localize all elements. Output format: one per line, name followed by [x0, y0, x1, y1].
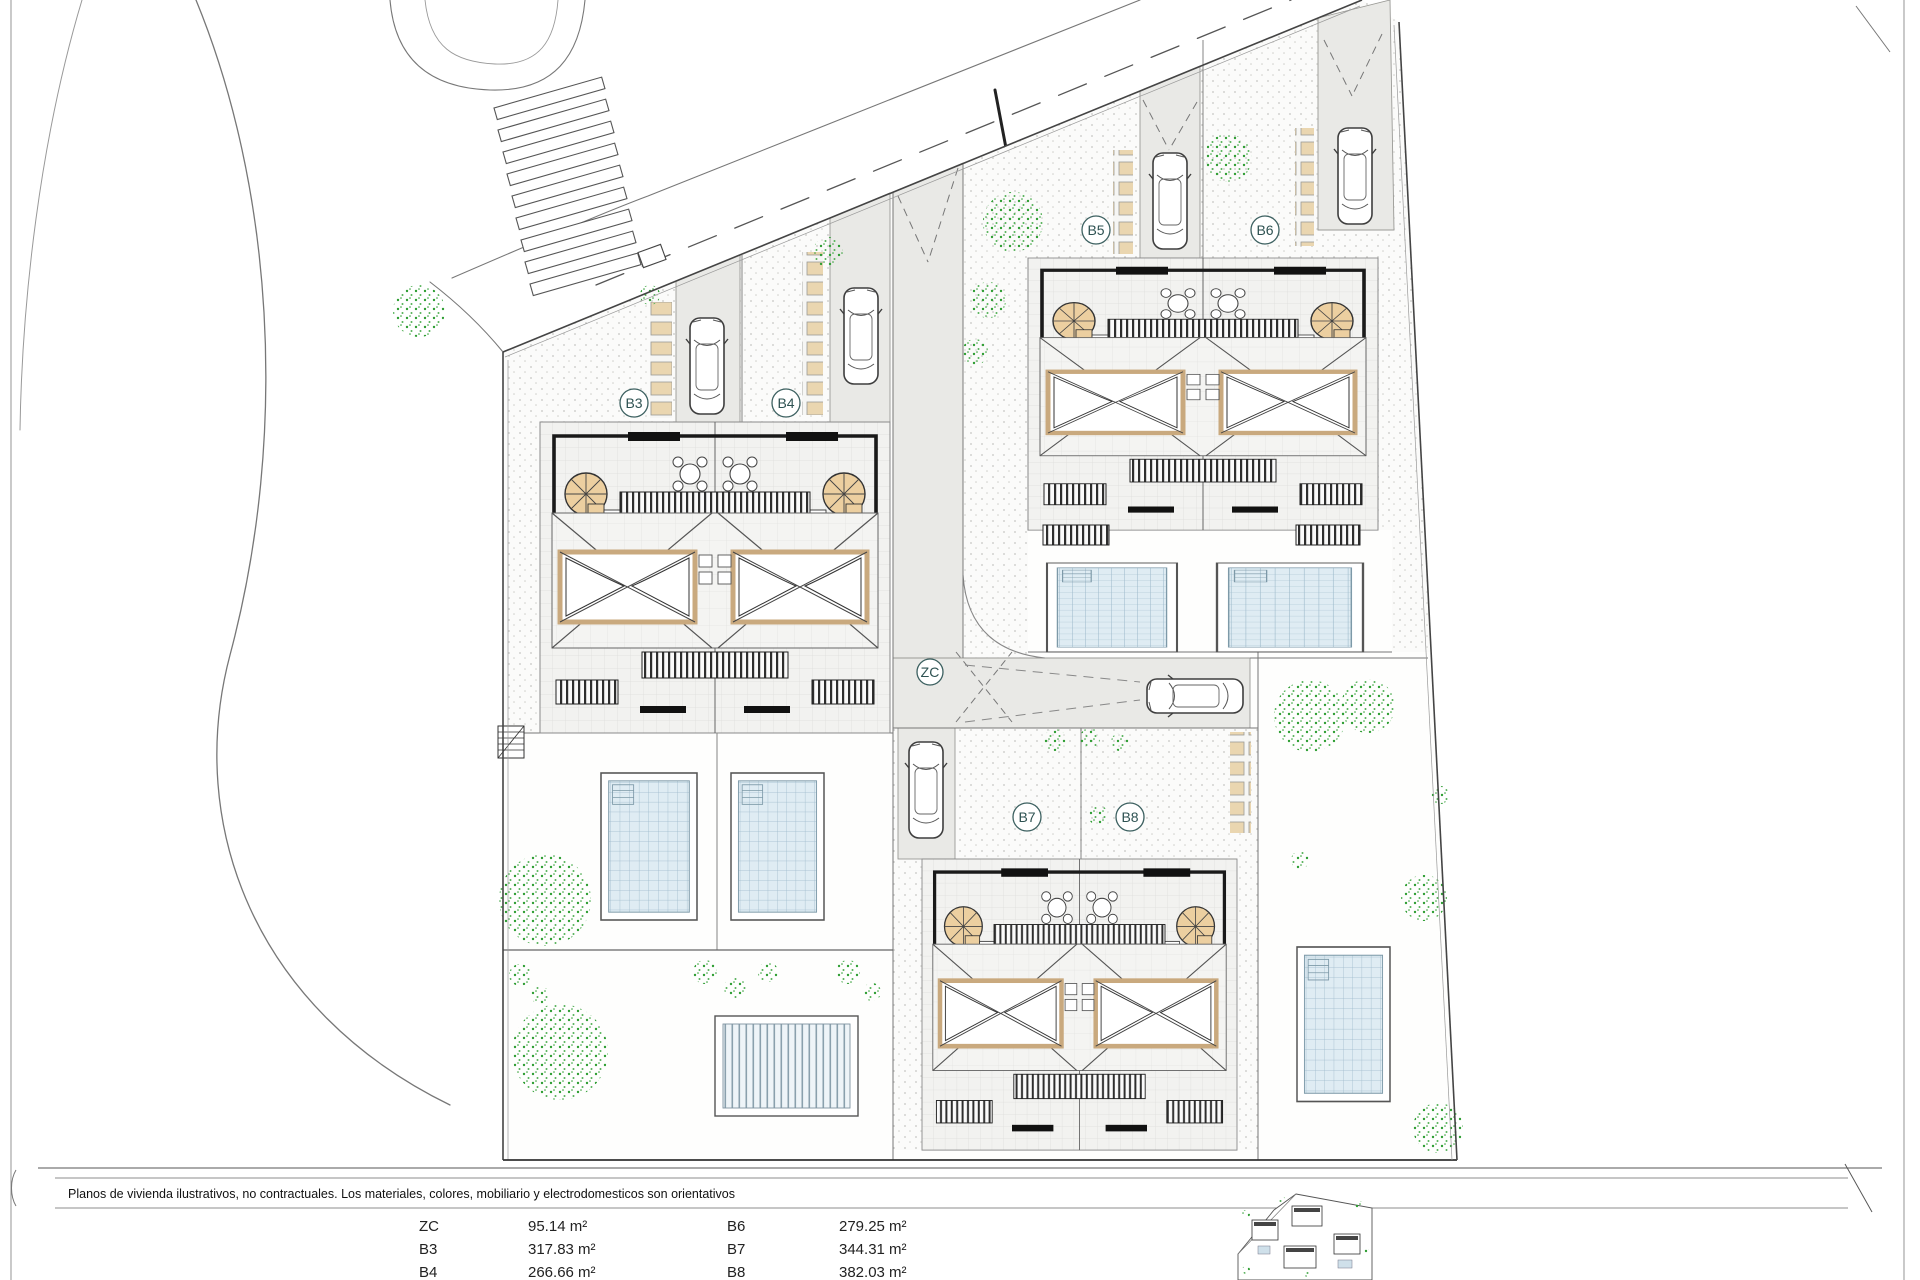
legend-val: 317.83 m² [528, 1241, 596, 1258]
duplex-b3-b4 [540, 422, 890, 733]
tree-icon [962, 339, 988, 365]
shrub-icon [863, 983, 881, 1001]
legend-val: 266.66 m² [528, 1264, 596, 1280]
paver-strip-b3 [650, 302, 672, 418]
plan-sheet: B3 B4 B5 B6 B7 B8 ZC Planos de vivienda … [0, 0, 1920, 1280]
tree-icon [1204, 134, 1252, 182]
tree-icon [1341, 679, 1395, 733]
legend-id: B6 [727, 1218, 745, 1235]
shrub-icon [1291, 851, 1309, 869]
unit-badge-b7: B7 [1013, 803, 1041, 831]
shrub-icon [1088, 805, 1108, 825]
shrub-icon [1080, 728, 1100, 748]
svg-text:ZC: ZC [921, 664, 940, 680]
car-icon-b4 [840, 288, 882, 384]
duplex-b7-b8 [922, 859, 1237, 1150]
unit-badge-b6: B6 [1251, 216, 1279, 244]
paver-strip-b8 [1230, 732, 1251, 833]
svg-text:B6: B6 [1256, 222, 1273, 238]
car-icon-zc [1147, 675, 1243, 717]
svg-text:B7: B7 [1018, 809, 1035, 825]
shrub-icon [1111, 733, 1129, 751]
shrub-icon [836, 960, 860, 984]
disclaimer-text: Planos de vivienda ilustrativos, no cont… [68, 1187, 735, 1201]
tree-icon [970, 282, 1006, 318]
legend-id: ZC [419, 1218, 439, 1235]
duplex-b5-b6 [1028, 258, 1378, 530]
tree-icon [1274, 680, 1346, 752]
tree-icon [983, 192, 1043, 252]
legend-val: 344.31 m² [839, 1241, 907, 1258]
zc-access-strip [893, 163, 963, 658]
car-icon-b5 [1149, 153, 1191, 249]
legend-val: 382.03 m² [839, 1264, 907, 1280]
legend-val: 279.25 m² [839, 1218, 907, 1235]
unit-badge-zc: ZC [917, 659, 943, 685]
svg-text:B3: B3 [625, 395, 642, 411]
car-icon-b6 [1334, 128, 1376, 224]
pergola-b6 [1296, 525, 1360, 545]
garden-deck [715, 1016, 858, 1116]
legend-id: B7 [727, 1241, 745, 1258]
pergola-b5 [1043, 525, 1109, 545]
unit-badge-b3: B3 [620, 389, 648, 417]
pool-b8 [1297, 947, 1390, 1102]
pool-b4 [731, 773, 824, 920]
svg-text:B8: B8 [1121, 809, 1138, 825]
tree-icon [1401, 875, 1447, 921]
pool-b5 [1047, 563, 1177, 652]
shrub-icon [1044, 729, 1066, 751]
legend-id: B4 [419, 1264, 437, 1280]
tree-icon [499, 854, 591, 946]
shrub-icon [531, 986, 549, 1004]
pool-b6 [1217, 563, 1363, 652]
car-icon-b7 [905, 742, 947, 838]
tree-icon [512, 1004, 608, 1100]
pool-b3 [601, 773, 697, 920]
legend-id: B3 [419, 1241, 437, 1258]
unit-badge-b4: B4 [772, 389, 800, 417]
shrub-icon [724, 977, 746, 999]
shrub-icon [758, 962, 778, 982]
site-plan-svg: B3 B4 B5 B6 B7 B8 ZC Planos de vivienda … [0, 0, 1920, 1280]
shrub-icon [509, 964, 531, 986]
shrub-icon [693, 960, 717, 984]
shrub-icon [813, 237, 843, 267]
garden-stairs-icon [498, 726, 524, 758]
svg-text:B5: B5 [1087, 222, 1104, 238]
unit-badge-b8: B8 [1116, 803, 1144, 831]
tree-icon [393, 285, 445, 337]
svg-text:B4: B4 [777, 395, 794, 411]
paver-strip-b5 [1113, 150, 1133, 254]
paver-strip-b6 [1295, 128, 1314, 246]
unit-badge-b5: B5 [1082, 216, 1110, 244]
paver-strip-b4 [802, 252, 823, 415]
legend-id: B8 [727, 1264, 745, 1280]
car-icon-b3 [686, 318, 728, 414]
legend-val: 95.14 m² [528, 1218, 587, 1235]
